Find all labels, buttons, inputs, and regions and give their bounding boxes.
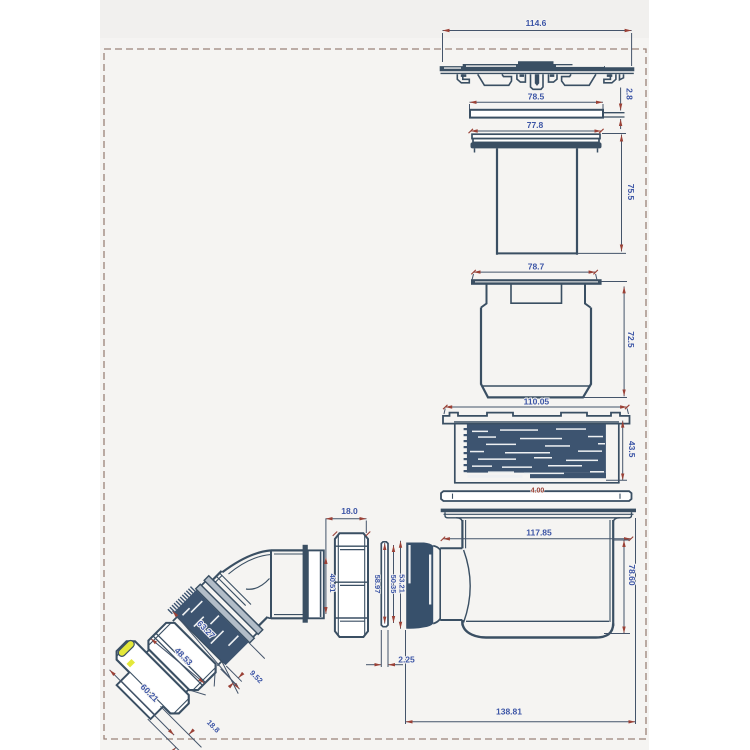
svg-text:78.60: 78.60 bbox=[627, 564, 637, 586]
svg-text:2.25: 2.25 bbox=[398, 655, 415, 665]
svg-text:75.5: 75.5 bbox=[626, 184, 636, 201]
svg-text:43.5: 43.5 bbox=[627, 441, 637, 458]
svg-text:58.97: 58.97 bbox=[373, 575, 382, 594]
svg-text:138.81: 138.81 bbox=[496, 707, 522, 717]
svg-text:110.05: 110.05 bbox=[524, 397, 550, 407]
svg-text:40.51: 40.51 bbox=[328, 574, 337, 593]
svg-text:117.85: 117.85 bbox=[526, 528, 552, 538]
svg-text:78.5: 78.5 bbox=[528, 92, 545, 102]
svg-text:2.8: 2.8 bbox=[624, 88, 634, 100]
svg-text:53.21: 53.21 bbox=[398, 574, 407, 593]
svg-text:18.0: 18.0 bbox=[341, 506, 358, 516]
svg-text:72.5: 72.5 bbox=[626, 331, 636, 348]
svg-text:78.7: 78.7 bbox=[528, 262, 545, 272]
svg-text:114.6: 114.6 bbox=[526, 18, 547, 28]
svg-text:77.8: 77.8 bbox=[527, 120, 544, 130]
svg-text:4.00: 4.00 bbox=[531, 488, 545, 495]
svg-text:50.35: 50.35 bbox=[389, 575, 398, 594]
